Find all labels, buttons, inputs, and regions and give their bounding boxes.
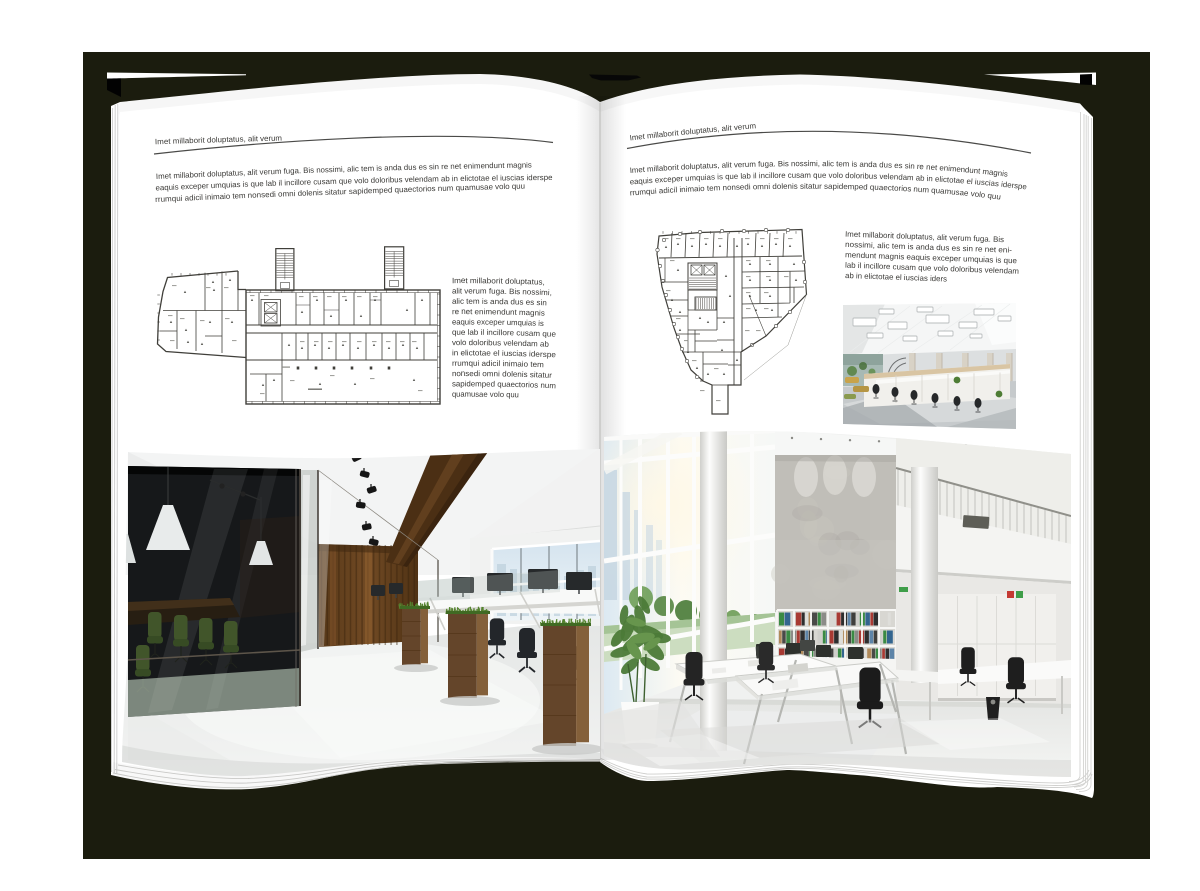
svg-text:eaquis exceper umquias is: eaquis exceper umquias is	[452, 317, 544, 328]
svg-text:quamusae volo quu: quamusae volo quu	[452, 390, 519, 400]
svg-text:rrumqui adicil inimaio tem: rrumqui adicil inimaio tem	[452, 359, 544, 369]
svg-text:Imet millaborit doluptatus,: Imet millaborit doluptatus,	[452, 276, 545, 287]
svg-text:re net enimendunt magnis: re net enimendunt magnis	[452, 307, 545, 318]
